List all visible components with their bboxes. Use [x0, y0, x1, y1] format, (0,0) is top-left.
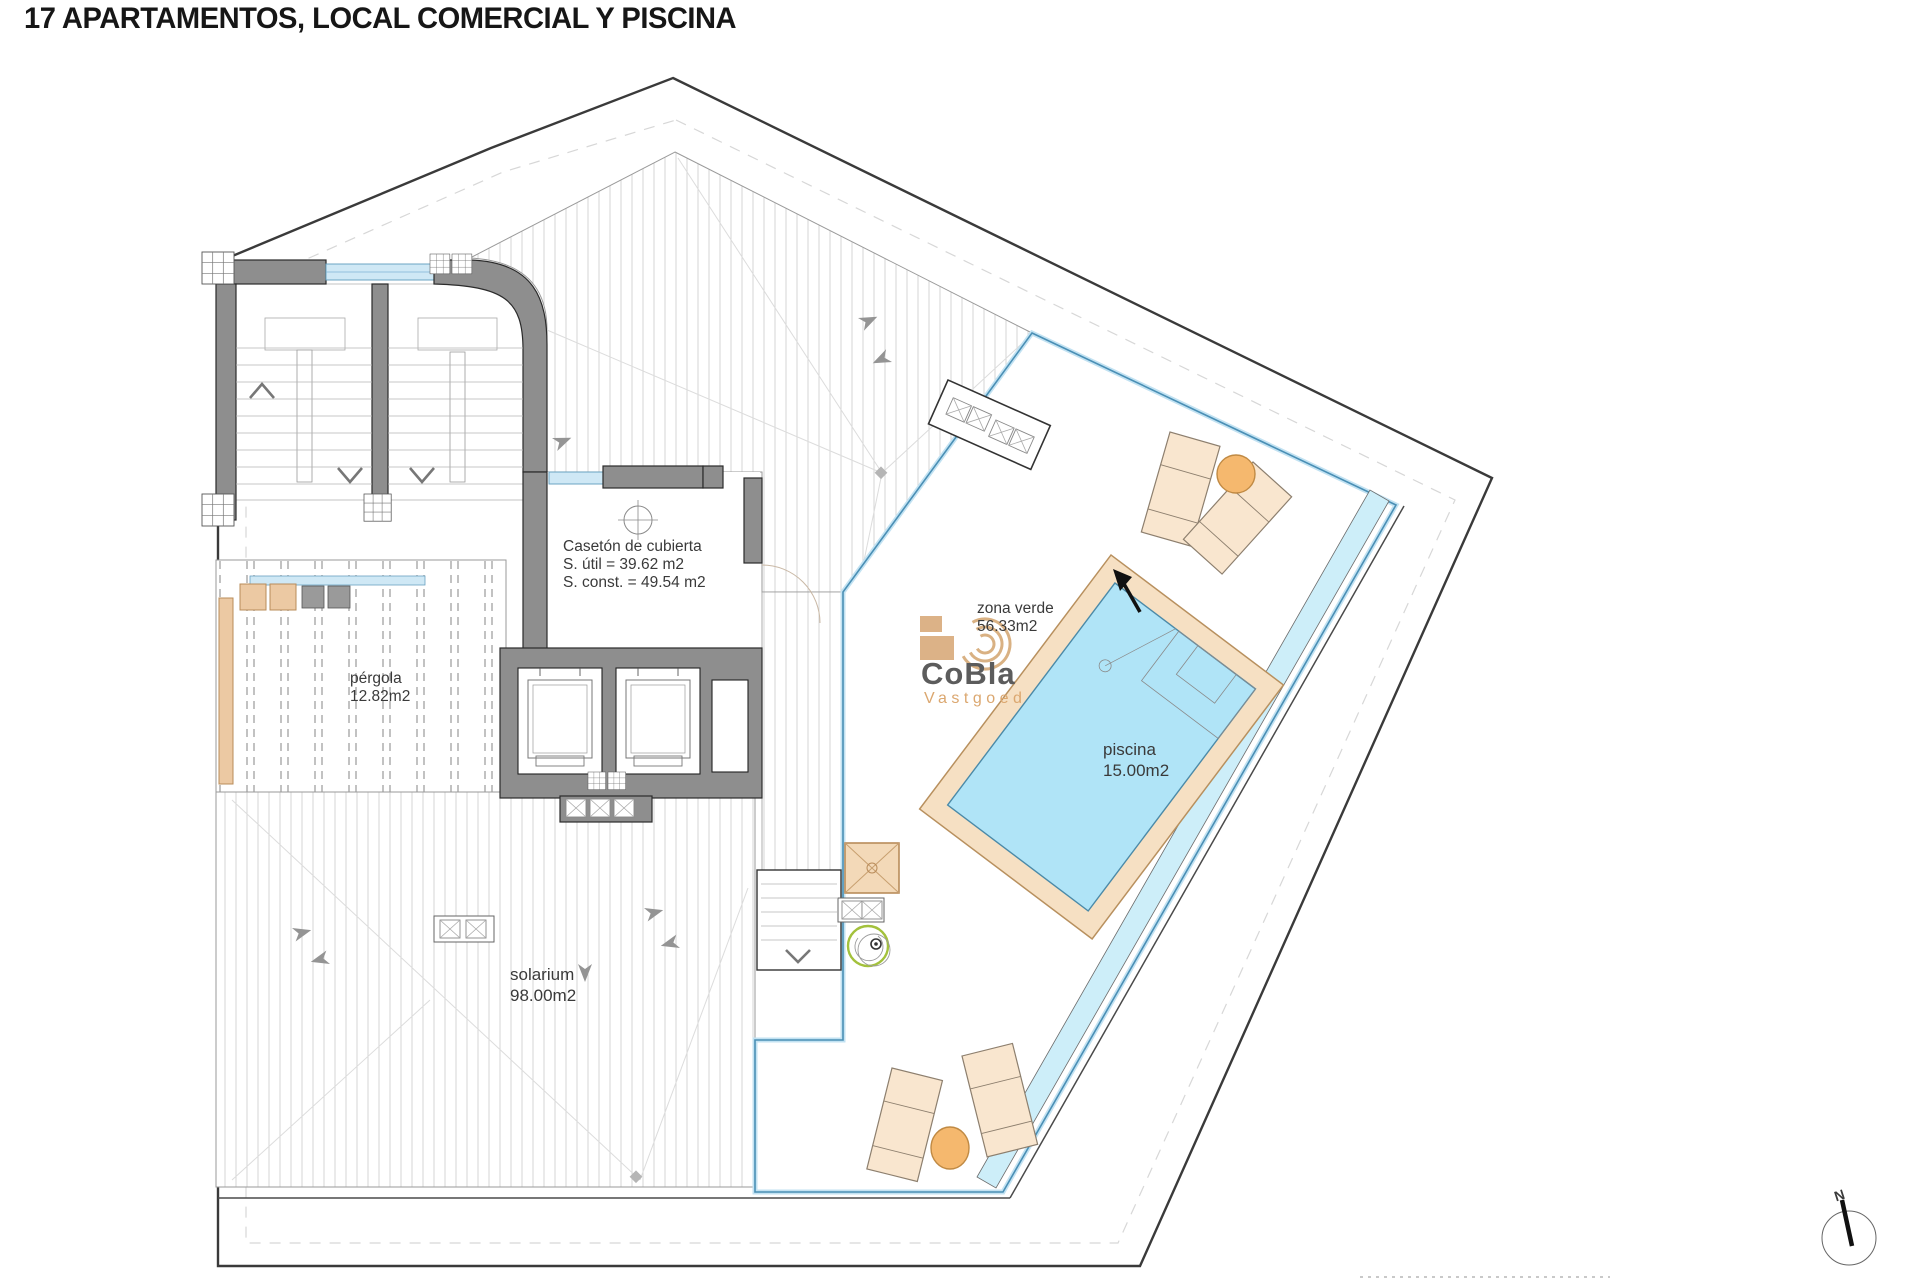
glazing-strip: [549, 472, 603, 484]
side-table: [1217, 455, 1255, 493]
pergola-post: [240, 584, 266, 610]
terrace-vent: [838, 898, 884, 922]
label-solarium: solarium: [510, 965, 574, 984]
pergola-post: [270, 584, 296, 610]
label-pergola: pérgola: [350, 670, 402, 687]
compass-north-label: N: [1832, 1186, 1847, 1204]
column-marker: [202, 494, 234, 526]
logo-brand-text: CoBla: [921, 656, 1016, 691]
logo-icon: [920, 616, 942, 632]
label-caseton-const: S. const. = 49.54 m2: [563, 574, 706, 591]
terrace-access-stair: [757, 870, 841, 970]
column-marker: [202, 252, 234, 284]
page-title: 17 APARTAMENTOS, LOCAL COMERCIAL Y PISCI…: [24, 2, 736, 36]
label-caseton-util: S. útil = 39.62 m2: [563, 556, 684, 573]
label-caseton-name: Casetón de cubierta: [563, 538, 702, 555]
roof-vent: [434, 916, 494, 942]
logo-subtitle-text: Vastgoed: [924, 690, 1026, 707]
elevator-block: [500, 648, 762, 822]
column-marker: [608, 772, 626, 790]
compass-needle: [1842, 1200, 1852, 1246]
pergola-post: [302, 586, 324, 608]
label-pergola-area: 12.82m2: [350, 688, 410, 705]
pergola-beam: [219, 598, 233, 784]
floor-plan-drawing: CoBla Vastgoed Casetón de cubierta S. út…: [0, 0, 1920, 1280]
label-zona-verde-area: 56.33m2: [977, 618, 1037, 635]
label-zona-verde: zona verde: [977, 600, 1054, 617]
side-table: [931, 1127, 969, 1169]
floor-plan-page: 17 APARTAMENTOS, LOCAL COMERCIAL Y PISCI…: [0, 0, 1920, 1280]
label-piscina: piscina: [1103, 740, 1156, 759]
pergola-post: [328, 586, 350, 608]
column-marker: [588, 772, 606, 790]
shade-sail: [845, 843, 899, 893]
stair-block: [202, 252, 547, 526]
column-marker: [452, 254, 472, 274]
label-piscina-area: 15.00m2: [1103, 761, 1169, 780]
north-compass: N: [1822, 1186, 1876, 1265]
label-solarium-area: 98.00m2: [510, 986, 576, 1005]
solarium-deck: [216, 792, 755, 1187]
column-marker: [430, 254, 450, 274]
column-marker: [364, 494, 391, 521]
